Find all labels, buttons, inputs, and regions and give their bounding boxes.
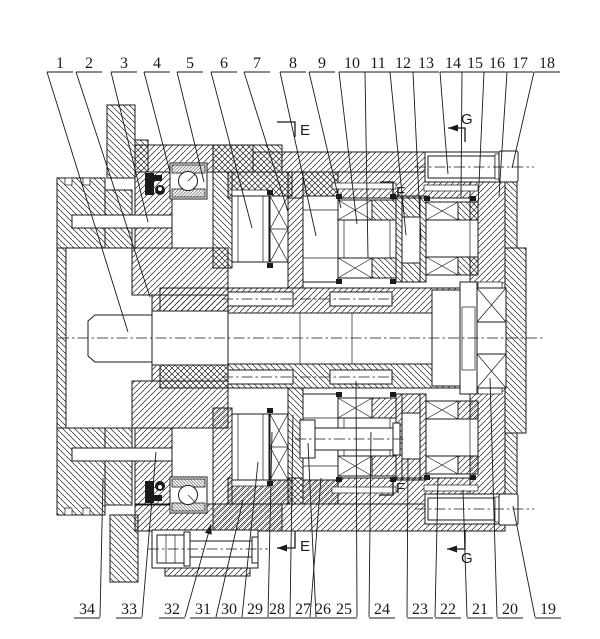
callout-label-13: 13 xyxy=(418,55,434,72)
callout-label-30: 30 xyxy=(221,601,237,618)
section-arrow-G xyxy=(448,125,458,132)
callout-label-11: 11 xyxy=(370,55,385,72)
callout-label-29: 29 xyxy=(247,601,263,618)
callout-label-24: 24 xyxy=(374,601,390,618)
leader-line-18 xyxy=(512,72,534,168)
callout-label-15: 15 xyxy=(467,55,483,72)
ball-bearing xyxy=(170,163,207,199)
flange-bolt-hole-bottom xyxy=(72,448,172,461)
callout-label-22: 22 xyxy=(440,601,456,618)
section-letter-G: G xyxy=(461,111,473,128)
planet-gear xyxy=(232,190,269,262)
callout-label-9: 9 xyxy=(318,55,326,72)
callout-label-33: 33 xyxy=(121,601,137,618)
callout-label-14: 14 xyxy=(445,55,461,72)
callout-label-19: 19 xyxy=(540,601,556,618)
section-letter-F: F xyxy=(396,184,405,201)
callout-label-7: 7 xyxy=(253,55,261,72)
callout-label-16: 16 xyxy=(489,55,505,72)
callout-label-6: 6 xyxy=(220,55,228,72)
callout-label-10: 10 xyxy=(344,55,360,72)
section-letter-E: E xyxy=(300,538,310,555)
flange-bolt-hole-top xyxy=(72,215,172,228)
callout-label-12: 12 xyxy=(395,55,411,72)
callout-label-4: 4 xyxy=(153,55,161,72)
assembly-drawing-svg: EEFFGG 123456789101112131415161718343332… xyxy=(0,0,600,639)
callout-label-17: 17 xyxy=(512,55,528,72)
section-letter-E: E xyxy=(300,122,310,139)
callout-label-8: 8 xyxy=(289,55,297,72)
callout-label-27: 27 xyxy=(295,601,311,618)
drawing-page: EEFFGG 123456789101112131415161718343332… xyxy=(0,0,600,639)
callout-label-2: 2 xyxy=(85,55,93,72)
callout-label-18: 18 xyxy=(539,55,555,72)
needle-bearing xyxy=(270,196,288,262)
callout-label-32: 32 xyxy=(164,601,180,618)
sun-gear xyxy=(303,196,338,282)
output-shaft-stub xyxy=(88,315,152,362)
callout-label-25: 25 xyxy=(336,601,352,618)
callout-label-3: 3 xyxy=(120,55,128,72)
callout-label-26: 26 xyxy=(315,601,331,618)
callout-label-34: 34 xyxy=(79,601,95,618)
callout-label-5: 5 xyxy=(186,55,194,72)
callout-label-28: 28 xyxy=(269,601,285,618)
callout-label-31: 31 xyxy=(195,601,211,618)
callout-label-20: 20 xyxy=(502,601,518,618)
callout-label-1: 1 xyxy=(56,55,64,72)
section-letter-G: G xyxy=(461,550,473,567)
section-letter-F: F xyxy=(396,480,405,497)
output-bearing xyxy=(477,282,506,322)
callout-label-23: 23 xyxy=(412,601,428,618)
section-arrow-G xyxy=(447,546,457,553)
end-cap xyxy=(505,178,526,495)
section-arrow-E xyxy=(277,545,287,552)
callout-label-21: 21 xyxy=(472,601,488,618)
